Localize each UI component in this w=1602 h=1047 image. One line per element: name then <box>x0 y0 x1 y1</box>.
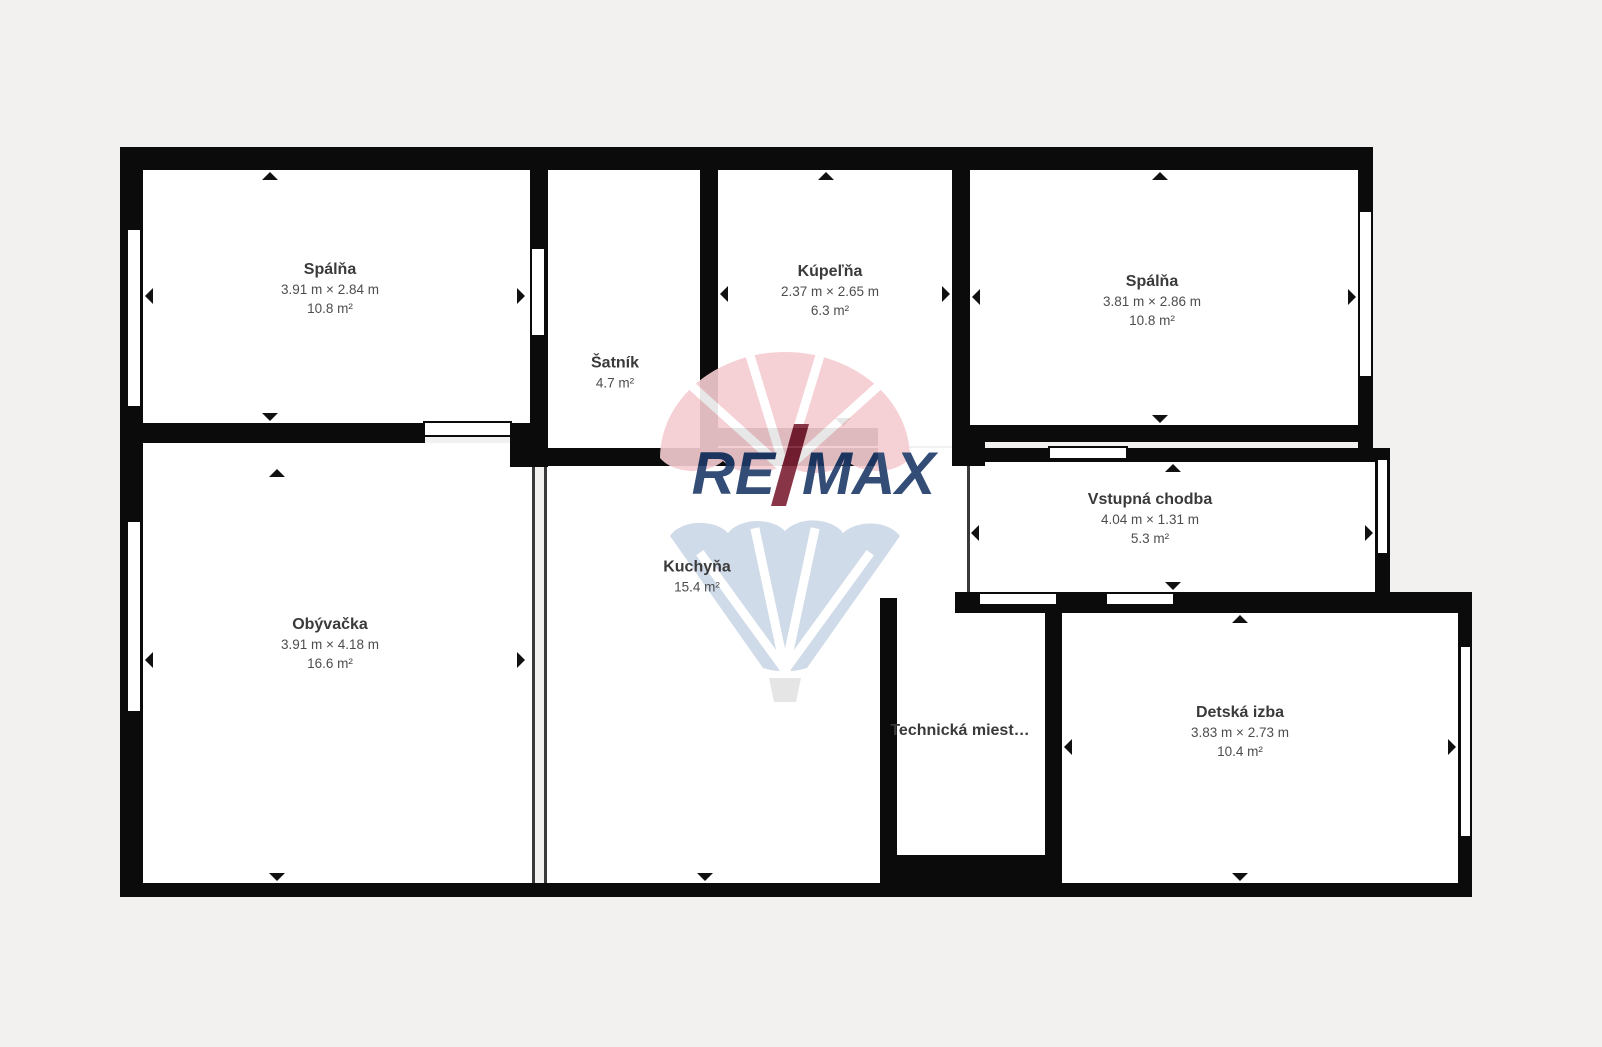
room-area-text: 15.4 m² <box>663 578 731 597</box>
dimension-arrow-left-icon <box>971 525 979 541</box>
room-name: Šatník <box>591 354 639 374</box>
room-area-text: 5.3 m² <box>1088 529 1212 548</box>
dimension-arrow-up-icon <box>262 172 278 180</box>
room-dimensions: 2.37 m × 2.65 m <box>781 282 879 301</box>
remax-balloon-logo: RE MAX <box>632 330 938 702</box>
room-dimensions: 3.91 m × 4.18 m <box>281 635 379 654</box>
wall <box>880 855 1062 883</box>
door-opening <box>1048 446 1128 460</box>
wall <box>1045 598 1062 883</box>
room-dimensions: 3.83 m × 2.73 m <box>1191 723 1289 742</box>
dimension-arrow-down-icon <box>1232 873 1248 881</box>
dimension-arrow-down-icon <box>697 873 713 881</box>
wall <box>120 423 425 443</box>
dimension-arrow-up-icon <box>1152 172 1168 180</box>
room-dimensions: 3.81 m × 2.86 m <box>1103 292 1201 311</box>
dimension-arrow-right-icon <box>1365 525 1373 541</box>
room-label-technicka: Technická miest… <box>890 721 1029 741</box>
room-name: Spálňa <box>1103 272 1201 292</box>
dimension-arrow-right-icon <box>1348 289 1356 305</box>
dimension-arrow-up-icon <box>818 172 834 180</box>
room-divider-line <box>532 467 535 883</box>
wall <box>952 448 1390 462</box>
dimension-arrow-left-icon <box>145 288 153 304</box>
dimension-arrow-right-icon <box>517 652 525 668</box>
room-name: Kúpeľňa <box>781 262 879 282</box>
room-label-spalna-1: Spálňa 3.91 m × 2.84 m 10.8 m² <box>281 260 379 318</box>
room-name: Technická miest… <box>890 721 1029 741</box>
room-divider-line <box>967 466 970 592</box>
wall <box>952 147 970 446</box>
room-dimensions: 3.91 m × 2.84 m <box>281 280 379 299</box>
dimension-arrow-up-icon <box>1232 615 1248 623</box>
room-label-spalna-2: Spálňa 3.81 m × 2.86 m 10.8 m² <box>1103 272 1201 330</box>
room-label-satnik: Šatník 4.7 m² <box>591 354 639 393</box>
window <box>1376 458 1389 555</box>
door-opening <box>530 247 546 337</box>
room-label-detska: Detská izba 3.83 m × 2.73 m 10.4 m² <box>1191 703 1289 761</box>
room-area-text: 16.6 m² <box>281 654 379 673</box>
brand-text-max: MAX <box>802 440 938 507</box>
room-name: Detská izba <box>1191 703 1289 723</box>
room-label-obyvacka: Obývačka 3.91 m × 4.18 m 16.6 m² <box>281 615 379 673</box>
dimension-arrow-down-icon <box>1165 582 1181 590</box>
dimension-arrow-left-icon <box>1064 739 1072 755</box>
wall <box>120 147 1373 170</box>
balloon-basket <box>769 678 801 702</box>
room-name: Vstupná chodba <box>1088 490 1212 510</box>
window <box>126 520 142 713</box>
room-label-kupelna: Kúpeľňa 2.37 m × 2.65 m 6.3 m² <box>781 262 879 320</box>
room-area-text: 4.7 m² <box>591 374 639 393</box>
room-name: Obývačka <box>281 615 379 635</box>
room-dimensions: 4.04 m × 1.31 m <box>1088 510 1212 529</box>
window <box>1459 645 1472 838</box>
door-opening <box>978 592 1058 606</box>
dimension-arrow-right-icon <box>942 286 950 302</box>
dimension-arrow-right-icon <box>517 288 525 304</box>
dimension-arrow-down-icon <box>262 413 278 421</box>
dimension-arrow-left-icon <box>720 286 728 302</box>
room-divider-line <box>544 467 547 883</box>
room-area-text: 10.4 m² <box>1191 742 1289 761</box>
dimension-arrow-up-icon <box>269 469 285 477</box>
room-area-text: 6.3 m² <box>781 301 879 320</box>
room-area-text: 10.8 m² <box>281 299 379 318</box>
room-label-kuchyna: Kuchyňa 15.4 m² <box>663 558 731 597</box>
door-opening <box>1105 592 1175 606</box>
dimension-arrow-down-icon <box>1152 415 1168 423</box>
dimension-arrow-left-icon <box>145 652 153 668</box>
dimension-arrow-down-icon <box>269 873 285 881</box>
room-area-text: 10.8 m² <box>1103 311 1201 330</box>
door-opening <box>423 421 512 437</box>
room-name: Spálňa <box>281 260 379 280</box>
window <box>126 228 142 408</box>
room-label-vstupna-chodba: Vstupná chodba 4.04 m × 1.31 m 5.3 m² <box>1088 490 1212 548</box>
dimension-arrow-right-icon <box>1448 739 1456 755</box>
brand-text-re: RE <box>692 440 777 507</box>
room-name: Kuchyňa <box>663 558 731 578</box>
floor-plan: RE MAX Spálňa 3.91 m × 2.84 m 10.8 m² Ša… <box>0 0 1602 1047</box>
dimension-arrow-left-icon <box>972 289 980 305</box>
window <box>1358 210 1373 378</box>
wall <box>952 425 1373 442</box>
dimension-arrow-up-icon <box>1165 464 1181 472</box>
wall <box>120 883 1472 897</box>
